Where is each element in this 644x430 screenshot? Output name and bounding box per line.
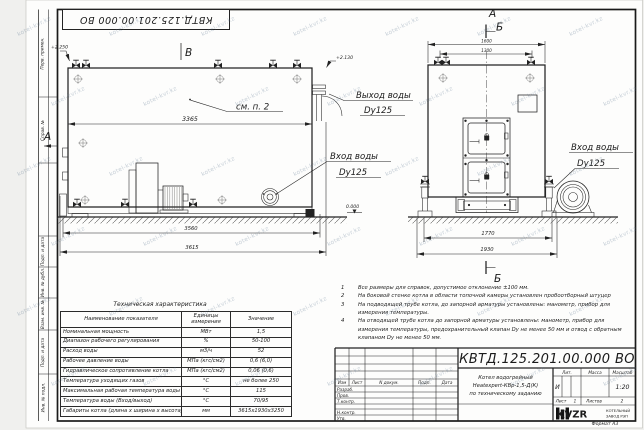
frame-label: Перв. примен. xyxy=(41,37,46,69)
masshtab-label: Масштаб xyxy=(613,370,633,375)
product-name-line1: Котел водогрейный xyxy=(478,375,533,381)
note-text: Все размеры для справок, допустимое откл… xyxy=(358,284,633,292)
frame-cell-podp-data-2: Подп. и дата xyxy=(39,330,49,374)
spec-name: Расход воды xyxy=(61,347,182,357)
elevation-ground: 0.000 xyxy=(346,204,359,210)
lit-label: Лит. xyxy=(561,370,572,375)
notes-list: 1Все размеры для справок, допустимое отк… xyxy=(341,284,633,342)
note-number: 4 xyxy=(341,317,358,342)
frame-label: Взам. инв. № xyxy=(41,299,46,328)
front-mark-b: Б xyxy=(496,22,503,34)
spec-table-title: Техническая характеристика xyxy=(50,301,270,308)
boiler-engineering-drawing: { "watermark": "kotel-kvr.kz", "frame": … xyxy=(0,0,644,430)
list-label: Лист xyxy=(555,399,567,404)
note-item: 1Все размеры для справок, допустимое отк… xyxy=(341,284,633,292)
spec-unit: % xyxy=(182,337,231,347)
logo-text: KVZR xyxy=(557,410,588,421)
spec-row: Диапазон рабочего регулирования%50-100 xyxy=(61,337,292,347)
dim-side-base: 3560 xyxy=(184,226,198,232)
frame-label: Подп. и дата xyxy=(41,337,46,366)
spec-name: Диапазон рабочего регулирования xyxy=(61,337,182,347)
spec-name: Температура воды (Вход/выход) xyxy=(61,397,182,407)
frame-cell-perv-primen: Перв. примен. xyxy=(39,10,49,98)
spec-value: не более 250 xyxy=(231,377,292,387)
product-name-line3: по техническому заданию xyxy=(469,391,542,397)
inlet-dn-label: Dy125 xyxy=(339,168,367,178)
ground xyxy=(58,217,619,223)
frame-cell-podp-data-1: Подп. и дата xyxy=(39,236,49,267)
inlet-water-label: Вход воды xyxy=(330,152,378,162)
spec-name: Максимальная рабочая температура воды xyxy=(61,387,182,397)
note-number: 1 xyxy=(341,284,358,292)
spec-value: 1,5 xyxy=(231,328,292,338)
note-number: 2 xyxy=(341,292,358,300)
massa-label: Масса xyxy=(588,370,602,375)
dim-side-total: 3615 xyxy=(185,245,199,251)
spec-unit: мм xyxy=(182,407,231,417)
row-tkontr: Т.контр. xyxy=(337,399,355,404)
note-number: 3 xyxy=(341,301,358,318)
spec-unit: МПа (кгс/см2) xyxy=(182,367,231,377)
frame-label: Подп. и дата xyxy=(41,237,46,266)
note-item: 4На отводящей трубе котла до запорной ар… xyxy=(341,317,633,342)
col-list: Лист xyxy=(351,380,363,385)
dim-side-body: 3365 xyxy=(182,116,198,123)
spec-unit: м3/ч xyxy=(182,347,231,357)
row-prov: Пров. xyxy=(337,393,349,398)
note-item: 3На подводящей трубе котла, до запорной … xyxy=(341,301,633,318)
spec-unit: °С xyxy=(182,397,231,407)
outlet-dn-label: Dy125 xyxy=(364,106,392,116)
lit-value: И xyxy=(555,384,560,391)
listov-value: 2 xyxy=(621,399,624,404)
listov-label: Листов xyxy=(585,399,602,404)
spec-value: 50-100 xyxy=(231,337,292,347)
spec-value: 115 xyxy=(231,387,292,397)
spec-col-value: Значение xyxy=(231,312,292,328)
front-mark-a: А xyxy=(488,8,496,20)
inlet2-water-label: Вход воды xyxy=(571,143,619,153)
dim-front-base-inner: 1770 xyxy=(481,231,495,237)
spec-row: Габариты котла (длина х ширина х высота)… xyxy=(61,407,292,417)
spec-value: 70/95 xyxy=(231,397,292,407)
spec-value: 0,6 (6,0) xyxy=(231,357,292,367)
inlet2-dn-label: Dy125 xyxy=(577,159,605,169)
doc-number: КВТД.125.201.00.000 ВО xyxy=(459,352,635,367)
spec-row: Максимальная рабочая температура воды°С1… xyxy=(61,387,292,397)
note-text: На отводящей трубе котла до запорной арм… xyxy=(358,317,633,342)
section-b-label: В xyxy=(185,47,192,59)
skid-corner-block xyxy=(306,209,315,217)
note-item: 2На боковой стенке котла в области топоч… xyxy=(341,292,633,300)
scale-value: 1:20 xyxy=(616,384,630,391)
spec-name: Гидравлическое сопротивление котла xyxy=(61,367,182,377)
note-text: На подводящей трубе котла, до запорной а… xyxy=(358,301,633,318)
col-data: Дата xyxy=(441,380,453,385)
spec-row: Номинальная мощностьМВт1,5 xyxy=(61,328,292,338)
frame-cell-inv-dubl: Инв. № дубл. xyxy=(39,267,49,298)
spec-col-name: Наименование показателя xyxy=(61,312,182,328)
product-name-line2: Heatexpert-КВр-1,5-Д(К) xyxy=(473,383,538,389)
spec-name: Номинальная мощность xyxy=(61,328,182,338)
spec-header-row: Наименование показателя Единицы измерени… xyxy=(61,312,292,328)
see-note-callout: см. п. 2 xyxy=(236,103,269,113)
elevation-outlet: +2.130 xyxy=(336,55,353,61)
frame-cell-inv-podl: Инв. № подл. xyxy=(39,374,49,421)
frame-cell-sprav-no: Справ. № xyxy=(39,97,49,163)
list-value: 1 xyxy=(574,399,577,404)
spec-name: Рабочее давление воды xyxy=(61,357,182,367)
logo-line1: КОТЕЛЬНЫЙ xyxy=(606,408,630,413)
spec-row: Температура воды (Вход/выход)°С70/95 xyxy=(61,397,292,407)
row-nkontr: Н.контр. xyxy=(337,410,356,415)
col-izm: Изм xyxy=(338,380,347,385)
frame-label: Инв. № дубл. xyxy=(41,268,46,297)
spec-col-unit: Единицы измерения xyxy=(182,312,231,328)
row-razrab: Разраб. xyxy=(337,387,353,392)
col-ndoc: N докум. xyxy=(379,380,398,385)
spec-unit: МПа (кгс/см2) xyxy=(182,357,231,367)
elevation-top-left: +2.250 xyxy=(51,45,68,51)
spec-row: Гидравлическое сопротивление котлаМПа (к… xyxy=(61,367,292,377)
col-podp: Подп. xyxy=(418,380,431,385)
outlet-water-label: Выход воды xyxy=(356,91,411,101)
top-reference-stamp: КВТД.125.201.00.000 ВО xyxy=(62,9,230,30)
spec-row: Температура уходящих газов°Сне более 250 xyxy=(61,377,292,387)
frame-label: Справ. № xyxy=(41,120,46,141)
frame-label: Инв. № подл. xyxy=(41,383,46,413)
spec-unit: °С xyxy=(182,377,231,387)
spec-table: Наименование показателя Единицы измерени… xyxy=(60,311,292,417)
note-text: На боковой стенке котла в области топочн… xyxy=(358,292,633,300)
spec-value: 52 xyxy=(231,347,292,357)
spec-name: Температура уходящих газов xyxy=(61,377,182,387)
logo-line2: ЗАВОД РЭП xyxy=(606,415,628,419)
dim-front-base-outer: 1930 xyxy=(480,247,494,253)
format-label: Формат А3 xyxy=(573,422,637,427)
spec-value: 3615х1930х3250 xyxy=(231,407,292,417)
spec-unit: °С xyxy=(182,387,231,397)
spec-name: Габариты котла (длина х ширина х высота) xyxy=(61,407,182,417)
spec-value: 0,06 (0,6) xyxy=(231,367,292,377)
spec-row: Расход водым3/ч52 xyxy=(61,347,292,357)
spec-unit: МВт xyxy=(182,328,231,338)
dim-front-top-outer: 1600 xyxy=(481,39,492,44)
frame-cell-vzam-inv: Взам. инв. № xyxy=(39,298,49,330)
spec-row: Рабочее давление водыМПа (кгс/см2)0,6 (6… xyxy=(61,357,292,367)
row-utv: Утв. xyxy=(337,416,346,421)
